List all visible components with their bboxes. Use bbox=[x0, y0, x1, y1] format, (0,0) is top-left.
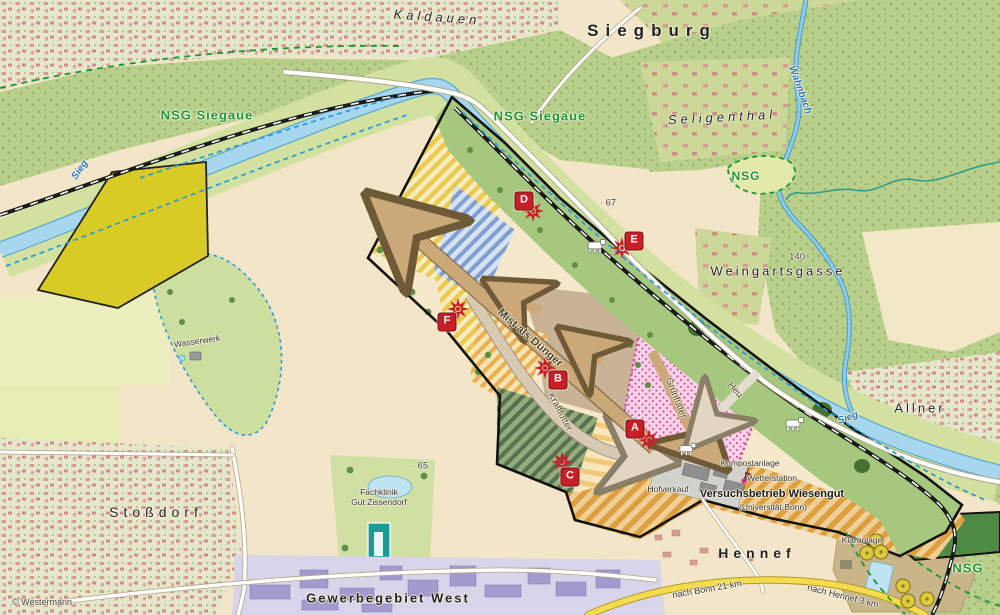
label-stossdorf: Stoßdorf bbox=[109, 504, 203, 520]
label-fachklinik-1: Fachklinik bbox=[360, 487, 398, 497]
label-kompostanlage: Kompostanlage bbox=[720, 458, 779, 468]
marker-e: E bbox=[625, 232, 644, 251]
label-nsg-siegaue-mid: NSG Siegaue bbox=[494, 109, 587, 124]
marker-f: F bbox=[438, 313, 457, 332]
marker-c: C bbox=[561, 468, 580, 487]
label-nsg-seligenthal: NSG bbox=[731, 169, 760, 183]
marker-a: A bbox=[626, 420, 645, 439]
label-elevation-67: · 67 bbox=[600, 198, 616, 209]
label-gewerbegebiet-west: Gewerbegebiet West bbox=[306, 591, 470, 606]
label-klaeranlage: Kläranlage bbox=[842, 535, 883, 545]
label-hofverkauf: Hofverkauf bbox=[647, 484, 688, 494]
marker-d: D bbox=[515, 192, 534, 211]
map: Kaldauen Siegburg Seligenthal NSG Siegau… bbox=[0, 0, 1000, 615]
label-siegburg: Siegburg bbox=[587, 21, 717, 41]
label-elevation-140: 140 · bbox=[789, 252, 811, 263]
label-weingartsgasse: Weingartsgasse bbox=[711, 264, 846, 279]
label-attribution: © Westermann bbox=[12, 597, 72, 607]
label-fachklinik-2: Gut Zissendorf bbox=[351, 497, 407, 507]
label-allner: Allner bbox=[894, 401, 945, 416]
label-universitaet-bonn: (Universität Bonn) bbox=[739, 502, 807, 512]
label-map-sheet-ref: 952 2 bbox=[975, 598, 993, 605]
label-wetterstation: Wetterstation bbox=[747, 473, 797, 483]
label-versuchsbetrieb: Versuchsbetrieb Wiesengut bbox=[700, 488, 844, 500]
marker-b: B bbox=[549, 371, 568, 390]
label-elevation-65: · 65 bbox=[412, 461, 428, 472]
label-nsg-southeast: NSG bbox=[952, 561, 983, 576]
map-graphics bbox=[0, 0, 1000, 615]
label-nsg-siegaue-west: NSG Siegaue bbox=[161, 108, 254, 123]
label-hennef: Hennef bbox=[718, 545, 795, 561]
